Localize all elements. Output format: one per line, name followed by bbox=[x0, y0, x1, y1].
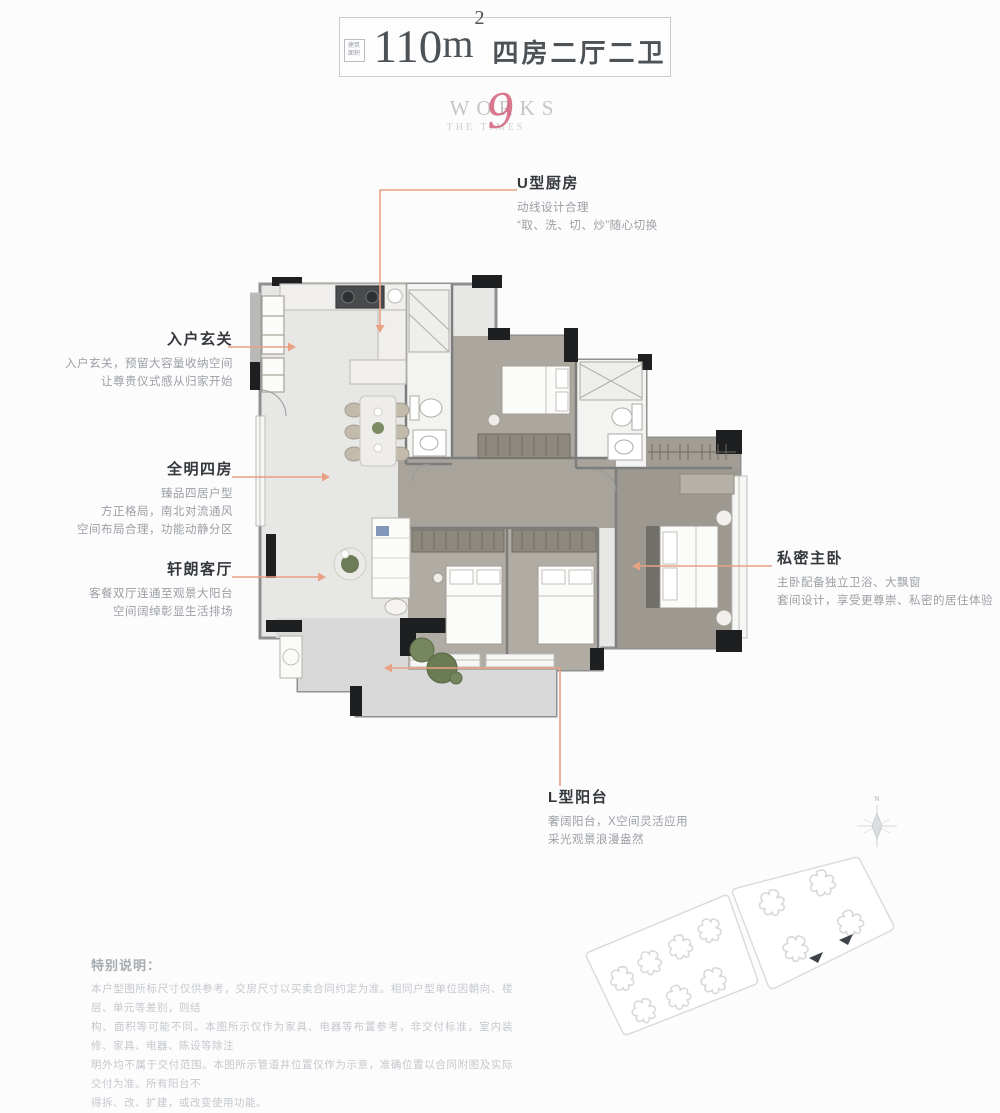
logo-thetimes-text: THE TIMES bbox=[420, 122, 552, 133]
area-superscript: 2 bbox=[474, 7, 484, 30]
floor-plan bbox=[250, 266, 750, 738]
entry-cabinets bbox=[262, 296, 284, 392]
callout-bright-four-rooms: 全明四房 臻品四居户型 方正格局，南北对流通风 空间布局合理，功能动静分区 bbox=[37, 462, 233, 539]
callout-line: 方正格局，南北对流通风 bbox=[37, 503, 233, 521]
toilet-icon bbox=[612, 408, 632, 426]
toilet-icon bbox=[410, 396, 419, 420]
coffee-table-icon bbox=[385, 599, 407, 615]
callout-u-kitchen: U型厨房 动线设计合理 “取、洗、切、炒”随心切换 bbox=[517, 176, 737, 235]
callout-title: U型厨房 bbox=[517, 176, 737, 191]
dining-set bbox=[345, 396, 409, 466]
callout-title: 全明四房 bbox=[37, 462, 233, 477]
callout-l-balcony: L型阳台 奢阔阳台，X空间灵活应用 采光观景浪漫盎然 bbox=[548, 790, 768, 849]
layout-text: 四房二厅二卫 bbox=[492, 33, 666, 70]
callout-line: 让尊贵仪式感从归家开始 bbox=[37, 373, 233, 391]
area-title-box: 建筑 面积 110 m 2 四房二厅二卫 bbox=[339, 17, 671, 77]
site-key-plan bbox=[583, 850, 905, 1050]
callout-line: 主卧配备独立卫浴、大飘窗 bbox=[777, 574, 995, 592]
area-stamp-icon: 建筑 面积 bbox=[344, 39, 365, 62]
notes-title: 特别说明： bbox=[91, 955, 161, 974]
logo-script-9: 9 bbox=[484, 87, 518, 136]
note-line: 本户型图所标尺寸仅供参考，交房尺寸以买卖合同约定为准。相同户型单位因朝向、楼层、… bbox=[91, 980, 513, 1018]
compass-icon: N bbox=[854, 792, 900, 852]
callout-master-bedroom: 私密主卧 主卧配备独立卫浴、大飘窗 套间设计，享受更尊崇、私密的居住体验 bbox=[777, 551, 995, 610]
building-outlines bbox=[586, 857, 893, 1034]
sink-icon bbox=[608, 434, 642, 460]
brand-logo: WORKS THE TIMES 9 bbox=[420, 98, 590, 153]
area-value: 110 bbox=[374, 24, 443, 71]
kitchen-sink-icon bbox=[388, 289, 402, 303]
callout-living-room: 轩朗客厅 客餐双厅连通至观景大阳台 空间阔绰彰显生活排场 bbox=[37, 562, 233, 621]
callout-line: 动线设计合理 bbox=[517, 199, 737, 217]
callout-line: 客餐双厅连通至观景大阳台 bbox=[37, 585, 233, 603]
stamp-line2: 面积 bbox=[348, 50, 360, 58]
callout-line: 臻品四居户型 bbox=[37, 485, 233, 503]
callout-entry-foyer: 入户玄关 入户玄关，预留大容量收纳空间 让尊贵仪式感从归家开始 bbox=[37, 332, 233, 391]
headboard bbox=[646, 526, 660, 608]
callout-title: 私密主卧 bbox=[777, 551, 995, 566]
callout-line: 采光观景浪漫盎然 bbox=[548, 831, 768, 849]
callout-line: 空间阔绰彰显生活排场 bbox=[37, 603, 233, 621]
wardrobe-icon bbox=[512, 530, 596, 552]
callout-title: L型阳台 bbox=[548, 790, 768, 805]
callout-line: “取、洗、切、炒”随心切换 bbox=[517, 217, 737, 235]
callout-line: 奢阔阳台，X空间灵活应用 bbox=[548, 813, 768, 831]
callout-title: 轩朗客厅 bbox=[37, 562, 233, 577]
note-line: 构、面积等可能不同。本图所示仅作为家具、电器等布置参考，非交付标准，室内装修、家… bbox=[91, 1018, 513, 1056]
cushion bbox=[376, 526, 389, 536]
area-unit: m bbox=[442, 24, 473, 64]
note-line: 明外均不属于交付范围。本图所示管道井位置仅作为示意，准确位置以合同附图及实际交付… bbox=[91, 1056, 513, 1094]
sink-icon bbox=[413, 430, 446, 456]
page: { "palette": { "leader_accent": "#e8a184… bbox=[0, 0, 1000, 1058]
note-line: 得拆、改、扩建，或改变使用功能。 bbox=[91, 1094, 513, 1113]
callout-line: 空间布局合理，功能动静分区 bbox=[37, 521, 233, 539]
compass-north-label: N bbox=[874, 796, 879, 803]
stamp-line1: 建筑 bbox=[348, 42, 360, 50]
notes-body: 本户型图所标尺寸仅供参考，交房尺寸以买卖合同约定为准。相同户型单位因朝向、楼层、… bbox=[91, 980, 513, 1113]
wardrobe-icon bbox=[478, 434, 570, 458]
callout-title: 入户玄关 bbox=[37, 332, 233, 347]
callout-line: 套间设计，享受更尊崇、私密的居住体验 bbox=[777, 592, 995, 610]
callout-line: 入户玄关，预留大容量收纳空间 bbox=[37, 355, 233, 373]
